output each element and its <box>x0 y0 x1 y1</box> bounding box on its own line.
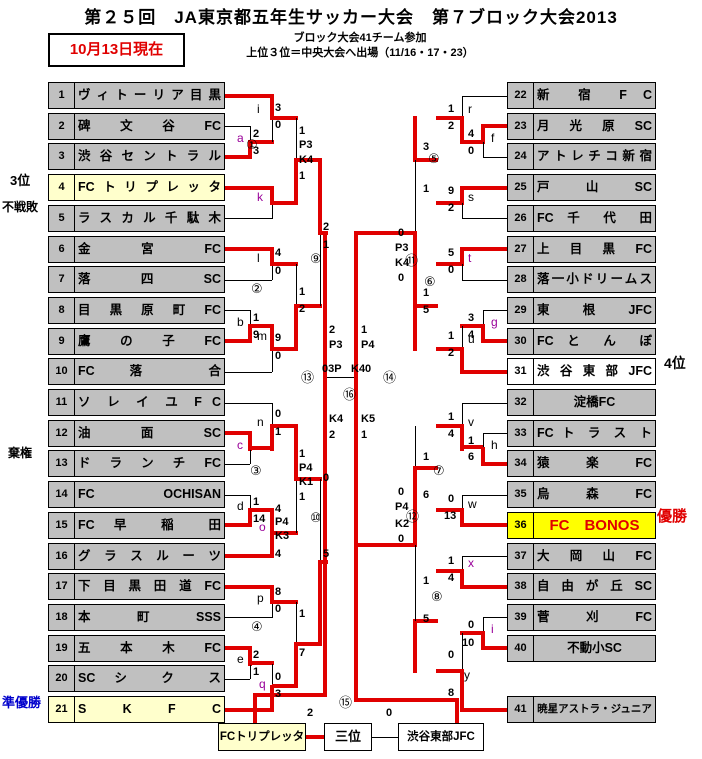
team-number: 31 <box>507 358 534 385</box>
match-score: 6 <box>468 452 474 463</box>
team-name: 本 町 SSS <box>74 604 225 631</box>
match-score: K4 <box>299 155 313 166</box>
winner-path-line <box>270 685 274 712</box>
match-letter: v <box>468 416 474 428</box>
team-number: 36 <box>507 512 534 539</box>
bracket-line <box>415 426 416 468</box>
match-score: 8 <box>275 587 281 598</box>
team-number: 11 <box>48 389 75 416</box>
bracket-line <box>462 96 507 97</box>
team-number: 40 <box>507 635 534 662</box>
team-name: ラスカル千駄木 <box>74 205 225 232</box>
match-score: 1 <box>423 184 429 195</box>
match-score: 4 <box>448 573 454 584</box>
team-number: 3 <box>48 143 75 170</box>
match-score: 1 <box>423 576 429 587</box>
match-letter: i <box>257 103 260 115</box>
match-score: 0 <box>398 487 404 498</box>
team-number: 19 <box>48 635 75 662</box>
match-letter: r <box>468 103 472 115</box>
team-name: FC と ん ぼ <box>533 328 656 355</box>
bracket-line <box>462 96 463 118</box>
team-name: アトレチコ新宿 <box>533 143 656 170</box>
winner-path-line <box>225 523 250 527</box>
match-score: 2 <box>448 348 454 359</box>
winner-path-line <box>460 324 483 328</box>
team-name: 自 由 が 丘 SC <box>533 573 656 600</box>
team-name: 碑 文 谷 FC <box>74 113 225 140</box>
match-letter: p <box>257 592 264 604</box>
winner-path-line <box>225 247 272 251</box>
team-name: 烏 森 FC <box>533 481 656 508</box>
note-line-1: ブロック大会41チーム参加 <box>210 31 510 46</box>
match-letter: g <box>491 316 498 328</box>
winner-path-line <box>413 619 417 673</box>
team-name: グ ラ ス ル ー ツ <box>74 543 225 570</box>
note-line-2: 上位３位＝中央大会へ出場（11/16・17・23） <box>210 46 510 61</box>
match-score: 8 <box>448 688 454 699</box>
match-score: 5 <box>423 305 429 316</box>
match-score: 10 <box>462 638 474 649</box>
bracket-line <box>250 664 251 679</box>
winner-path-line <box>255 693 327 697</box>
match-score: P4 <box>361 340 374 351</box>
winner-path-line <box>225 554 272 558</box>
bracket-line <box>462 403 463 426</box>
match-number: ① <box>246 138 258 151</box>
match-letter: b <box>237 316 244 328</box>
match-score: 1 <box>423 288 429 299</box>
match-letter: n <box>257 416 264 428</box>
match-score: 1 <box>253 497 259 508</box>
team-number: 13 <box>48 450 75 477</box>
bracket-line <box>415 545 416 621</box>
match-score: 1 <box>299 492 305 503</box>
winner-path-line <box>225 708 272 712</box>
bracket-line <box>483 617 507 618</box>
team-number: 15 <box>48 512 75 539</box>
team-number: 37 <box>507 543 534 570</box>
match-score: K3 <box>275 531 289 542</box>
match-score: 2 <box>323 222 329 233</box>
winner-path-line <box>460 116 464 144</box>
side-label: 4位 <box>664 356 686 371</box>
match-number: ⑨ <box>310 252 322 265</box>
match-score: 1 <box>253 313 259 324</box>
side-label: 準優勝 <box>2 696 41 710</box>
bracket-line <box>272 203 273 219</box>
team-number: 33 <box>507 420 534 447</box>
winner-path-line <box>462 585 507 589</box>
side-label: 優勝 <box>657 509 687 526</box>
team-name: 下 目 黒 田 道 FC <box>74 573 225 600</box>
team-name: 淀橋FC <box>533 389 656 416</box>
team-number: 9 <box>48 328 75 355</box>
winner-path-line <box>460 631 483 635</box>
match-score: 2 <box>448 203 454 214</box>
team-name: FCトリプレッタ <box>74 174 225 201</box>
bracket-line <box>462 326 463 349</box>
match-score: 5 <box>323 549 329 560</box>
match-number: ⑧ <box>431 590 443 603</box>
match-score: 9 <box>275 333 281 344</box>
winner-path-line <box>413 304 417 351</box>
match-letter: f <box>491 132 494 144</box>
bracket-line <box>225 464 250 465</box>
bracket-line <box>325 377 356 378</box>
match-letter: y <box>464 669 470 681</box>
match-score: 0 <box>448 650 454 661</box>
match-letter: w <box>468 498 477 510</box>
third-place-label: 三位 <box>324 723 372 751</box>
match-score: 1 <box>448 556 454 567</box>
match-number: ⑥ <box>424 275 436 288</box>
winner-path-line <box>253 693 257 723</box>
team-name: 暁星アストラ・ジュニア <box>533 696 656 723</box>
match-score: 3 <box>275 103 281 114</box>
bracket-line <box>272 602 273 618</box>
team-number: 16 <box>48 543 75 570</box>
match-letter: x <box>468 557 474 569</box>
winner-path-line <box>294 424 298 481</box>
bracket-line <box>462 218 507 219</box>
winner-path-line <box>462 708 507 712</box>
team-name: 不動小SC <box>533 635 656 662</box>
team-number: 21 <box>48 696 75 723</box>
tournament-note: ブロック大会41チーム参加 上位３位＝中央大会へ出場（11/16・17・23） <box>210 31 510 61</box>
match-score: 0 <box>275 351 281 362</box>
team-number: 41 <box>507 696 534 723</box>
bracket-line <box>225 403 272 404</box>
bracket-line <box>296 602 297 644</box>
bracket-line <box>462 280 507 281</box>
team-number: 22 <box>507 82 534 109</box>
team-number: 5 <box>48 205 75 232</box>
match-score: K5 <box>361 414 375 425</box>
match-letter: u <box>468 333 475 345</box>
match-score: 7 <box>299 648 305 659</box>
match-score: 2 <box>329 430 335 441</box>
winner-path-line <box>354 231 415 235</box>
team-name: 新 宿 F C <box>533 82 656 109</box>
team-number: 14 <box>48 481 75 508</box>
winner-path-line <box>294 304 298 351</box>
team-number: 24 <box>507 143 534 170</box>
bracket-line <box>225 679 250 680</box>
bracket-line <box>272 349 273 372</box>
match-letter: l <box>257 252 260 264</box>
match-score: K1 <box>299 477 313 488</box>
winner-path-line <box>323 231 327 695</box>
match-letter: k <box>257 191 263 203</box>
bracket-line <box>272 264 273 280</box>
winner-path-line <box>225 431 250 435</box>
team-name: 目 黒 原 町 FC <box>74 297 225 324</box>
team-number: 12 <box>48 420 75 447</box>
bracket-line <box>483 433 507 434</box>
match-letter: d <box>237 500 244 512</box>
match-number: ③ <box>250 464 262 477</box>
team-number: 28 <box>507 266 534 293</box>
date-text: 10月13日現在 <box>70 41 163 58</box>
match-score: 2 <box>329 325 335 336</box>
team-name: 金 宮 FC <box>74 236 225 263</box>
side-label: 棄権 <box>8 447 32 460</box>
team-name: 大 岡 山 FC <box>533 543 656 570</box>
team-name: FC 落 合 <box>74 358 225 385</box>
winner-path-line <box>436 669 462 673</box>
match-score: 3 <box>275 689 281 700</box>
match-letter: c <box>237 439 243 451</box>
team-number: 34 <box>507 450 534 477</box>
bracket-line <box>296 479 297 533</box>
bracket-line <box>483 310 507 311</box>
bracket-line <box>225 617 272 618</box>
match-number: ⑯ <box>343 388 356 401</box>
match-score: 0 <box>398 228 404 239</box>
team-name: FC ト ラ ス ト <box>533 420 656 447</box>
bracket-line <box>225 372 272 373</box>
match-score: 0 <box>275 409 281 420</box>
bracket-line <box>462 495 507 496</box>
team-number: 10 <box>48 358 75 385</box>
match-score: P4 <box>275 517 288 528</box>
team-name: 戸 山 SC <box>533 174 656 201</box>
match-score: 6 <box>423 490 429 501</box>
match-letter: i <box>491 623 494 635</box>
match-score: 1 <box>361 325 367 336</box>
match-score: 1 <box>323 240 329 251</box>
match-score: 4 <box>468 129 474 140</box>
side-label: 3位 <box>10 174 30 188</box>
winner-path-line <box>225 186 272 190</box>
bracket-line <box>225 126 250 127</box>
match-score: 0 <box>275 266 281 277</box>
team-name: 上 目 黒 FC <box>533 236 656 263</box>
match-number: ⑪ <box>405 254 418 267</box>
team-name: 菅 刈 FC <box>533 604 656 631</box>
team-name: 油 面 SC <box>74 420 225 447</box>
bracket-line <box>296 118 297 160</box>
bracket-line <box>462 203 463 218</box>
winner-path-line <box>225 94 272 98</box>
winner-path-line <box>225 339 250 343</box>
team-name: 渋谷セントラル <box>74 143 225 170</box>
team-number: 23 <box>507 113 534 140</box>
team-name: FC 千 代 田 <box>533 205 656 232</box>
team-number: 18 <box>48 604 75 631</box>
match-letter: s <box>468 191 474 203</box>
team-name: SC シ ク ス <box>74 665 225 692</box>
winner-path-line <box>460 424 464 451</box>
team-name: FC BONOS <box>533 512 656 539</box>
winner-path-line <box>294 158 298 205</box>
match-score: 1 <box>468 436 474 447</box>
match-letter: q <box>259 678 266 690</box>
bracket-line <box>296 264 297 306</box>
match-score: P3 <box>299 140 312 151</box>
winner-path-line <box>250 661 274 665</box>
team-number: 7 <box>48 266 75 293</box>
match-score: 13 <box>444 511 456 522</box>
winner-path-line <box>483 462 507 466</box>
team-number: 20 <box>48 665 75 692</box>
team-number: 6 <box>48 236 75 263</box>
team-name: FC OCHISAN <box>74 481 225 508</box>
bracket-line <box>225 495 250 496</box>
match-score: 0 <box>448 494 454 505</box>
winner-path-line <box>354 231 358 702</box>
match-score: K40 <box>351 364 371 375</box>
winner-path-line <box>225 585 272 589</box>
match-number: ⑮ <box>339 696 352 709</box>
winner-path-line <box>483 646 507 650</box>
match-letter: e <box>237 653 244 665</box>
match-score: K4 <box>329 414 343 425</box>
match-letter: m <box>257 330 267 342</box>
match-score: 1 <box>361 430 367 441</box>
bracket-line <box>415 160 416 233</box>
winner-path-line <box>225 155 250 159</box>
match-score: 0 <box>323 473 329 484</box>
team-name: 渋 谷 東 部 JFC <box>533 358 656 385</box>
match-score: 1 <box>299 287 305 298</box>
winner-path-line <box>413 466 417 547</box>
match-score: 0 <box>448 265 454 276</box>
team-number: 1 <box>48 82 75 109</box>
team-number: 27 <box>507 236 534 263</box>
side-label: 不戦敗 <box>2 201 38 214</box>
winner-path-line <box>413 116 417 162</box>
winner-path-line <box>483 339 507 343</box>
match-number: ④ <box>251 620 263 633</box>
match-score: 03P <box>322 364 342 375</box>
team-number: 8 <box>48 297 75 324</box>
match-number: ② <box>251 282 263 295</box>
match-score: 0 <box>275 120 281 131</box>
match-score: 0 <box>275 672 281 683</box>
team-number: 25 <box>507 174 534 201</box>
match-score: 0 <box>398 534 404 545</box>
bracket-line <box>225 310 250 311</box>
match-letter: t <box>468 252 471 264</box>
match-score: 2 <box>253 650 259 661</box>
match-score: 5 <box>448 248 454 259</box>
match-score: 1 <box>299 126 305 137</box>
winner-path-line <box>460 347 464 374</box>
match-number: ⑩ <box>310 511 322 524</box>
third-place-right-team: 渋谷東部JFC <box>398 723 484 751</box>
match-score: 1 <box>448 331 454 342</box>
date-box: 10月13日現在 <box>48 33 185 67</box>
match-score: 0 <box>275 604 281 615</box>
winner-path-line <box>462 370 507 374</box>
match-score: 4 <box>275 504 281 515</box>
winner-path-line <box>481 447 485 466</box>
bracket-line <box>462 264 463 280</box>
match-score: 2 <box>299 304 305 315</box>
team-name: S K F C <box>74 696 225 723</box>
match-score: 9 <box>448 186 454 197</box>
match-number: ⑦ <box>433 464 445 477</box>
match-score: 3 <box>468 313 474 324</box>
bracket-line <box>320 235 321 306</box>
winner-path-line <box>294 642 298 688</box>
match-letter: a <box>237 132 244 144</box>
team-number: 2 <box>48 113 75 140</box>
team-name: 猿 楽 FC <box>533 450 656 477</box>
winner-path-line <box>354 698 457 702</box>
match-score: 4 <box>448 429 454 440</box>
team-number: 29 <box>507 297 534 324</box>
team-number: 32 <box>507 389 534 416</box>
bracket-line <box>272 403 273 426</box>
winner-path-line <box>318 560 322 644</box>
team-name: FC 早 稲 田 <box>74 512 225 539</box>
bracket-line <box>225 280 272 281</box>
team-number: 4 <box>48 174 75 201</box>
team-name: 月 光 原 SC <box>533 113 656 140</box>
match-score: 0 <box>386 708 392 719</box>
team-number: 30 <box>507 328 534 355</box>
match-score: 2 <box>448 121 454 132</box>
match-letter: o <box>259 521 266 533</box>
match-score: P3 <box>329 340 342 351</box>
match-score: 1 <box>448 104 454 115</box>
match-score: 1 <box>423 452 429 463</box>
match-score: 1 <box>448 412 454 423</box>
winner-path-line <box>455 698 459 723</box>
match-score: 2 <box>307 708 313 719</box>
winner-path-line <box>318 158 322 235</box>
bracket-line <box>462 403 507 404</box>
team-name: 落 四 SC <box>74 266 225 293</box>
match-number: ⑤ <box>428 152 440 165</box>
match-score: 0 <box>398 273 404 284</box>
match-score: 1 <box>275 427 281 438</box>
bracket-line <box>225 218 272 219</box>
match-score: 0 <box>468 146 474 157</box>
match-score: 4 <box>275 248 281 259</box>
winner-path-line <box>225 646 250 650</box>
team-name: 五 本 木 FC <box>74 635 225 662</box>
team-number: 35 <box>507 481 534 508</box>
match-score: 1 <box>299 609 305 620</box>
winner-path-line <box>462 523 507 527</box>
match-score: P4 <box>299 463 312 474</box>
bracket-line <box>483 157 507 158</box>
match-score: 1 <box>299 171 305 182</box>
winner-path-line <box>270 424 274 451</box>
team-name: 鷹 の 子 FC <box>74 328 225 355</box>
winner-path-line <box>413 231 417 308</box>
match-number: ⑭ <box>383 371 396 384</box>
bracket-line <box>483 142 484 157</box>
match-score: 1 <box>299 449 305 460</box>
team-name: ド ラ ン チ FC <box>74 450 225 477</box>
match-score: 0 <box>468 620 474 631</box>
page-title: 第２５回 JA東京都五年生サッカー大会 第７ブロック大会2013 <box>0 3 702 28</box>
match-letter: h <box>491 439 498 451</box>
winner-path-line <box>354 543 415 547</box>
team-name: ヴィトーリア目黒 <box>74 82 225 109</box>
team-number: 39 <box>507 604 534 631</box>
bracket-line <box>372 737 398 738</box>
winner-path-line <box>483 124 507 128</box>
team-name: ソ レ イ ユ F C <box>74 389 225 416</box>
team-number: 26 <box>507 205 534 232</box>
winner-path-line <box>306 735 324 739</box>
